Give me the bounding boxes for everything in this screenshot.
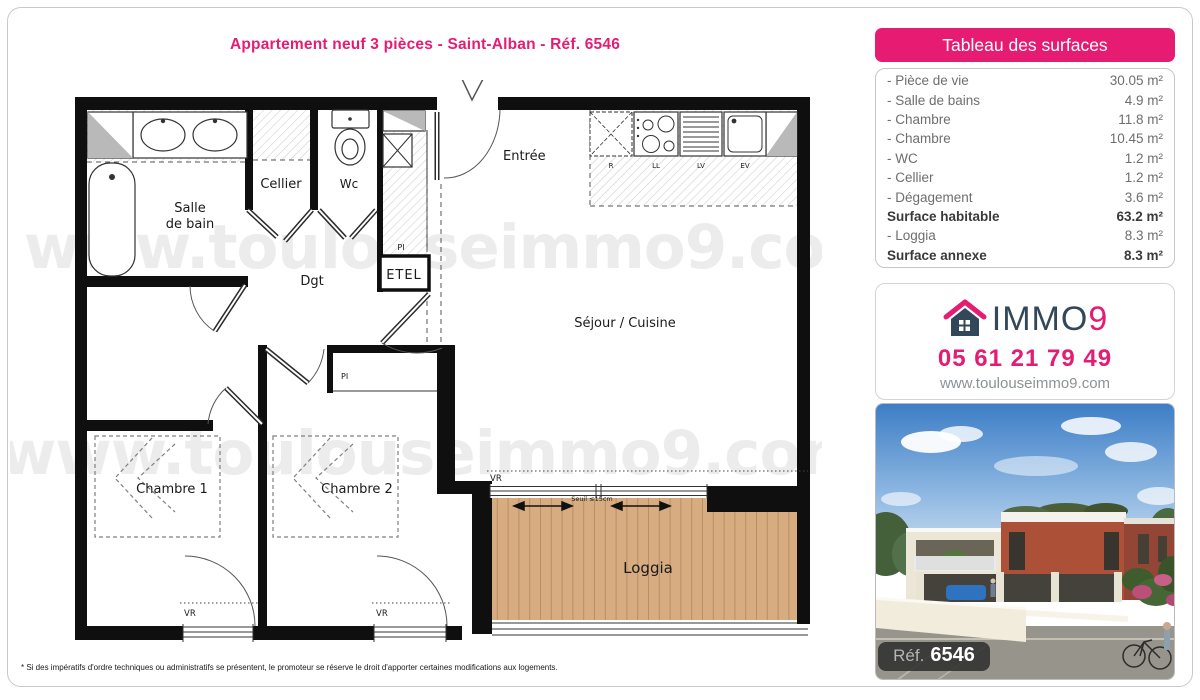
bathtub (89, 163, 135, 276)
surface-row-value: 3.6 m² (1125, 188, 1163, 207)
entrance-door (437, 110, 500, 180)
immo9-house-icon (942, 298, 988, 340)
agency-logo: IMMO9 (876, 298, 1174, 340)
svg-text:Entrée: Entrée (503, 149, 546, 164)
surface-row-label: Surface habitable (887, 207, 1000, 226)
svg-text:PI: PI (397, 243, 404, 252)
svg-text:VR: VR (184, 609, 196, 619)
surface-row: Surface habitable 63.2 m² (876, 207, 1174, 226)
surface-row-label: - Loggia (887, 226, 936, 245)
svg-text:LL: LL (652, 162, 660, 170)
svg-text:Wc: Wc (340, 177, 358, 191)
svg-text:Séjour / Cuisine: Séjour / Cuisine (574, 316, 676, 331)
flyer-page: Appartement neuf 3 pièces - Saint-Alban … (0, 0, 1200, 700)
svg-text:LV: LV (697, 162, 705, 170)
legal-footnote: * Si des impératifs d'ordre techniques o… (21, 663, 558, 672)
surface-row: - Loggia 8.3 m² (876, 226, 1174, 245)
surface-row-label: - Chambre (887, 110, 951, 129)
property-photo-render (876, 404, 1175, 680)
entrance-arrow-icon (462, 80, 483, 100)
svg-text:R: R (609, 162, 614, 170)
svg-text:VR: VR (376, 609, 388, 619)
svg-text:Salle: Salle (174, 201, 205, 216)
agency-phone: 05 61 21 79 49 (876, 345, 1174, 373)
surface-row: - WC 1.2 m² (876, 149, 1174, 168)
surface-row: - Chambre 10.45 m² (876, 129, 1174, 148)
agency-card: IMMO9 05 61 21 79 49 www.toulouseimmo9.c… (875, 283, 1175, 400)
surface-row: - Chambre 11.8 m² (876, 110, 1174, 129)
surface-row-value: 11.8 m² (1118, 110, 1163, 129)
chambre1-door (208, 388, 262, 424)
surface-row: Surface annexe 8.3 m² (876, 246, 1174, 265)
wc-door (319, 210, 376, 238)
svg-text:de bain: de bain (166, 217, 214, 232)
page-title: Appartement neuf 3 pièces - Saint-Alban … (75, 36, 775, 54)
surface-row-value: 4.9 m² (1125, 91, 1163, 110)
svg-text:Dgt: Dgt (300, 274, 323, 289)
surface-row-label: - Cellier (887, 168, 934, 187)
kitchen-counter (590, 112, 766, 156)
svg-text:Cellier: Cellier (260, 177, 302, 192)
sink-icon (724, 112, 766, 156)
surface-row-label: - WC (887, 149, 918, 168)
cooktop-icon (634, 112, 678, 156)
window-chambre1 (183, 624, 253, 642)
surface-row-label: - Salle de bains (887, 91, 980, 110)
window-chambre2 (374, 624, 446, 642)
svg-text:Seuil ≤15cm: Seuil ≤15cm (571, 495, 613, 503)
etel-box: ETEL (380, 256, 429, 290)
bathroom-door (190, 285, 245, 331)
surface-row-value: 1.2 m² (1125, 149, 1163, 168)
svg-text:PI: PI (341, 372, 348, 381)
surface-row-label: Surface annexe (887, 246, 987, 265)
surfaces-table: - Pièce de vie 30.05 m² - Salle de bains… (875, 68, 1175, 268)
surface-row-label: - Chambre (887, 129, 951, 148)
dishwasher-icon (680, 112, 722, 156)
ref-number: 6546 (930, 644, 975, 667)
surface-row-value: 63.2 m² (1116, 207, 1163, 226)
svg-text:Loggia: Loggia (623, 559, 673, 577)
surface-row-value: 1.2 m² (1125, 168, 1163, 187)
brand-word: IMMO9 (992, 302, 1108, 336)
property-photo: Réf. 6546 (875, 403, 1175, 680)
cellier-door (248, 210, 312, 241)
photo-ref-badge: Réf. 6546 (878, 642, 990, 671)
ref-word: Réf. (893, 646, 924, 666)
svg-text:Chambre 1: Chambre 1 (136, 482, 208, 497)
svg-text:VR: VR (490, 474, 502, 484)
floor-plan-drawing: ETEL Salle de bain Celli (10, 80, 822, 662)
surface-row: - Salle de bains 4.9 m² (876, 91, 1174, 110)
surface-row-value: 8.3 m² (1124, 246, 1163, 265)
surface-row: - Dégagement 3.6 m² (876, 188, 1174, 207)
svg-text:Chambre 2: Chambre 2 (321, 482, 393, 497)
floor-plan-area: www.toulouseimmo9.com www.toulouseimmo9.… (10, 80, 822, 662)
svg-text:EV: EV (740, 162, 749, 170)
svg-text:ETEL: ETEL (386, 268, 422, 283)
agency-website: www.toulouseimmo9.com (876, 375, 1174, 392)
chambre2-door (266, 349, 324, 383)
surface-row-value: 8.3 m² (1125, 226, 1163, 245)
surface-row-value: 10.45 m² (1110, 129, 1163, 148)
surface-row-label: - Pièce de vie (887, 71, 969, 90)
surface-row-value: 30.05 m² (1110, 71, 1163, 90)
toilet (332, 110, 369, 165)
double-sink-vanity (133, 112, 247, 158)
surfaces-table-header: Tableau des surfaces (875, 28, 1175, 62)
surface-row-label: - Dégagement (887, 188, 973, 207)
surface-row: - Cellier 1.2 m² (876, 168, 1174, 187)
surface-row: - Pièce de vie 30.05 m² (876, 71, 1174, 90)
sejour-door (382, 294, 442, 353)
